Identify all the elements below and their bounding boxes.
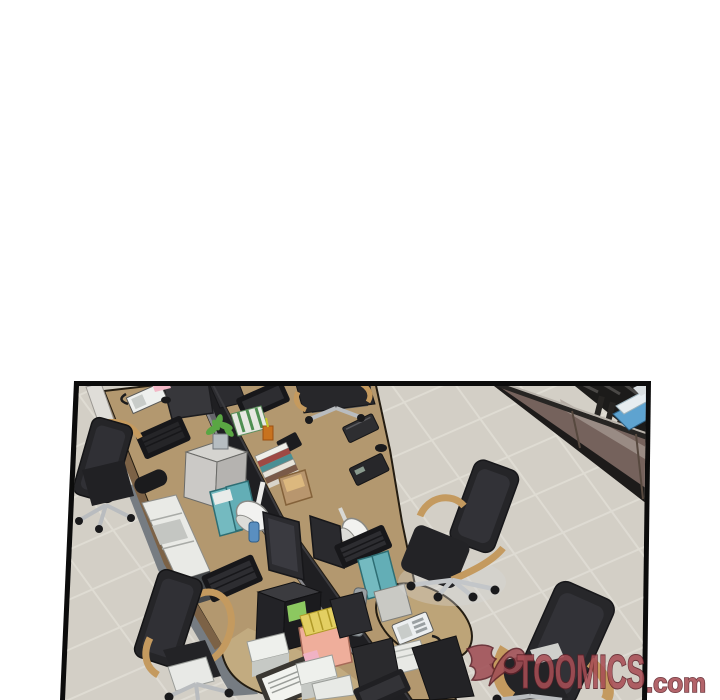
svg-text:TOOMICS: TOOMICS	[517, 645, 645, 698]
svg-text:.com: .com	[646, 668, 706, 698]
